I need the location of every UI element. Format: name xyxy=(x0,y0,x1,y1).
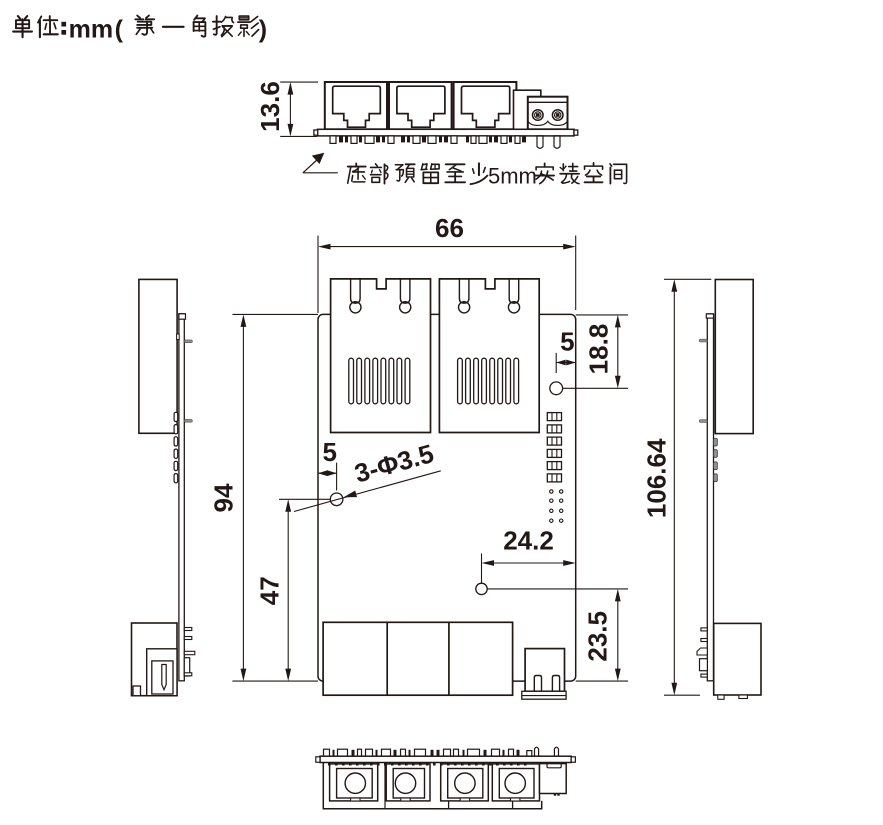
svg-text:mm: mm xyxy=(69,15,113,43)
svg-text:(: ( xyxy=(115,15,124,43)
svg-text:94: 94 xyxy=(209,483,239,512)
svg-text:): ) xyxy=(259,15,267,43)
svg-text:5: 5 xyxy=(560,327,574,357)
svg-text:23.5: 23.5 xyxy=(583,611,613,662)
svg-text:18.8: 18.8 xyxy=(583,324,613,375)
svg-text:106.64: 106.64 xyxy=(641,438,671,518)
svg-text:5: 5 xyxy=(322,437,336,467)
svg-text:5mm: 5mm xyxy=(488,163,537,188)
svg-text:66: 66 xyxy=(435,213,464,243)
svg-text:13.6: 13.6 xyxy=(255,81,285,132)
svg-text:47: 47 xyxy=(255,576,285,605)
svg-text:24.2: 24.2 xyxy=(503,526,554,556)
